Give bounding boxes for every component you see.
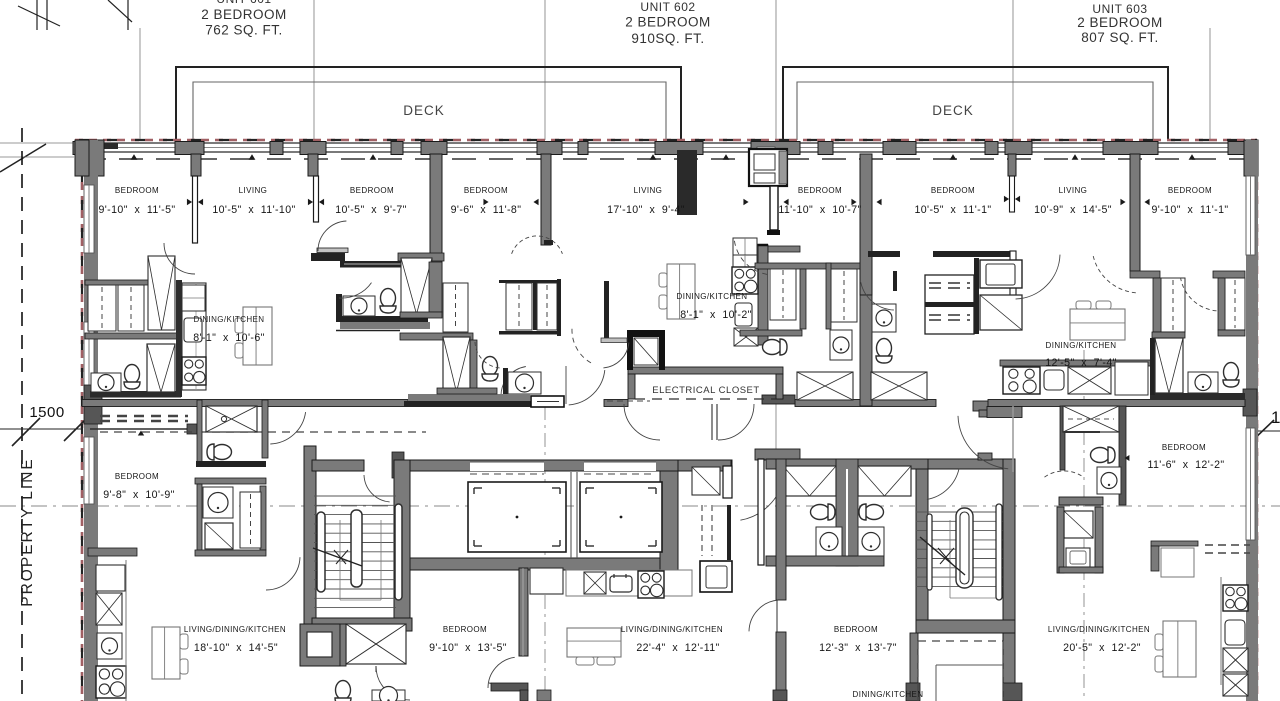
svg-text:11'-6" x 12'-2": 11'-6" x 12'-2" — [1147, 459, 1224, 471]
svg-text:10'-5" x 11'-1": 10'-5" x 11'-1" — [914, 204, 991, 216]
svg-text:11'-10" x 10'-7": 11'-10" x 10'-7" — [778, 204, 861, 216]
svg-text:UNIT 602: UNIT 602 — [640, 0, 695, 14]
svg-text:LIVING/DINING/KITCHEN: LIVING/DINING/KITCHEN — [1048, 625, 1150, 634]
svg-text:22'-4" x 12'-11": 22'-4" x 12'-11" — [636, 642, 719, 654]
svg-text:2 BEDROOM: 2 BEDROOM — [625, 15, 711, 30]
svg-text:12'-5" x 7'-4": 12'-5" x 7'-4" — [1045, 357, 1117, 369]
svg-text:910SQ. FT.: 910SQ. FT. — [631, 31, 704, 46]
svg-text:150: 150 — [1271, 408, 1280, 427]
svg-text:DECK: DECK — [403, 103, 445, 118]
svg-text:20'-5" x 12'-2": 20'-5" x 12'-2" — [1063, 642, 1141, 654]
svg-text:762 SQ. FT.: 762 SQ. FT. — [205, 23, 283, 38]
svg-text:LIVING/DINING/KITCHEN: LIVING/DINING/KITCHEN — [621, 625, 723, 634]
svg-text:DINING/KITCHEN: DINING/KITCHEN — [677, 292, 748, 301]
svg-text:1500: 1500 — [29, 404, 64, 421]
svg-text:LIVING: LIVING — [634, 186, 663, 195]
svg-text:18'-10" x 14'-5": 18'-10" x 14'-5" — [194, 642, 278, 654]
svg-text:9'-10" x 11'-5": 9'-10" x 11'-5" — [98, 204, 175, 216]
svg-text:2 BEDROOM: 2 BEDROOM — [1077, 15, 1163, 30]
svg-text:DECK: DECK — [932, 103, 974, 118]
svg-text:807 SQ. FT.: 807 SQ. FT. — [1081, 30, 1159, 45]
svg-text:8'-1" x 10'-2": 8'-1" x 10'-2" — [680, 309, 752, 321]
svg-text:LIVING: LIVING — [1059, 186, 1088, 195]
svg-text:BEDROOM: BEDROOM — [1162, 443, 1206, 452]
svg-text:BEDROOM: BEDROOM — [931, 186, 975, 195]
svg-text:BEDROOM: BEDROOM — [115, 472, 159, 481]
svg-text:DINING/KITCHEN: DINING/KITCHEN — [194, 315, 265, 324]
svg-text:UNIT 603: UNIT 603 — [1092, 2, 1147, 16]
svg-text:2 BEDROOM: 2 BEDROOM — [201, 7, 287, 22]
svg-text:10'-5" x 9'-7": 10'-5" x 9'-7" — [335, 204, 407, 216]
svg-text:BEDROOM: BEDROOM — [834, 625, 878, 634]
svg-text:DINING/KITCHEN: DINING/KITCHEN — [853, 690, 924, 699]
svg-text:DINING/KITCHEN: DINING/KITCHEN — [1046, 341, 1117, 350]
svg-text:BEDROOM: BEDROOM — [1168, 186, 1212, 195]
svg-text:10'-5" x 11'-10": 10'-5" x 11'-10" — [212, 204, 295, 216]
svg-text:9'-8" x 10'-9": 9'-8" x 10'-9" — [103, 489, 175, 501]
svg-text:LIVING: LIVING — [239, 186, 268, 195]
svg-text:BEDROOM: BEDROOM — [798, 186, 842, 195]
svg-text:BEDROOM: BEDROOM — [464, 186, 508, 195]
svg-text:9'-10" x 13'-5": 9'-10" x 13'-5" — [429, 642, 507, 654]
svg-text:8'-1" x 10'-6": 8'-1" x 10'-6" — [193, 332, 265, 344]
svg-text:9'-6" x 11'-8": 9'-6" x 11'-8" — [451, 204, 522, 216]
svg-text:ELECTRICAL CLOSET: ELECTRICAL CLOSET — [652, 385, 759, 396]
svg-text:UNIT 601: UNIT 601 — [216, 0, 271, 6]
svg-text:BEDROOM: BEDROOM — [115, 186, 159, 195]
svg-text:BEDROOM: BEDROOM — [350, 186, 394, 195]
svg-text:LIVING/DINING/KITCHEN: LIVING/DINING/KITCHEN — [184, 625, 286, 634]
svg-text:PROPERTY LINE: PROPERTY LINE — [19, 457, 36, 606]
svg-text:12'-3" x 13'-7": 12'-3" x 13'-7" — [819, 642, 897, 654]
svg-text:17'-10" x 9'-4": 17'-10" x 9'-4" — [607, 204, 685, 216]
svg-text:BEDROOM: BEDROOM — [443, 625, 487, 634]
svg-text:9'-10" x 11'-1": 9'-10" x 11'-1" — [1151, 204, 1228, 216]
svg-text:10'-9" x 14'-5": 10'-9" x 14'-5" — [1034, 204, 1112, 216]
